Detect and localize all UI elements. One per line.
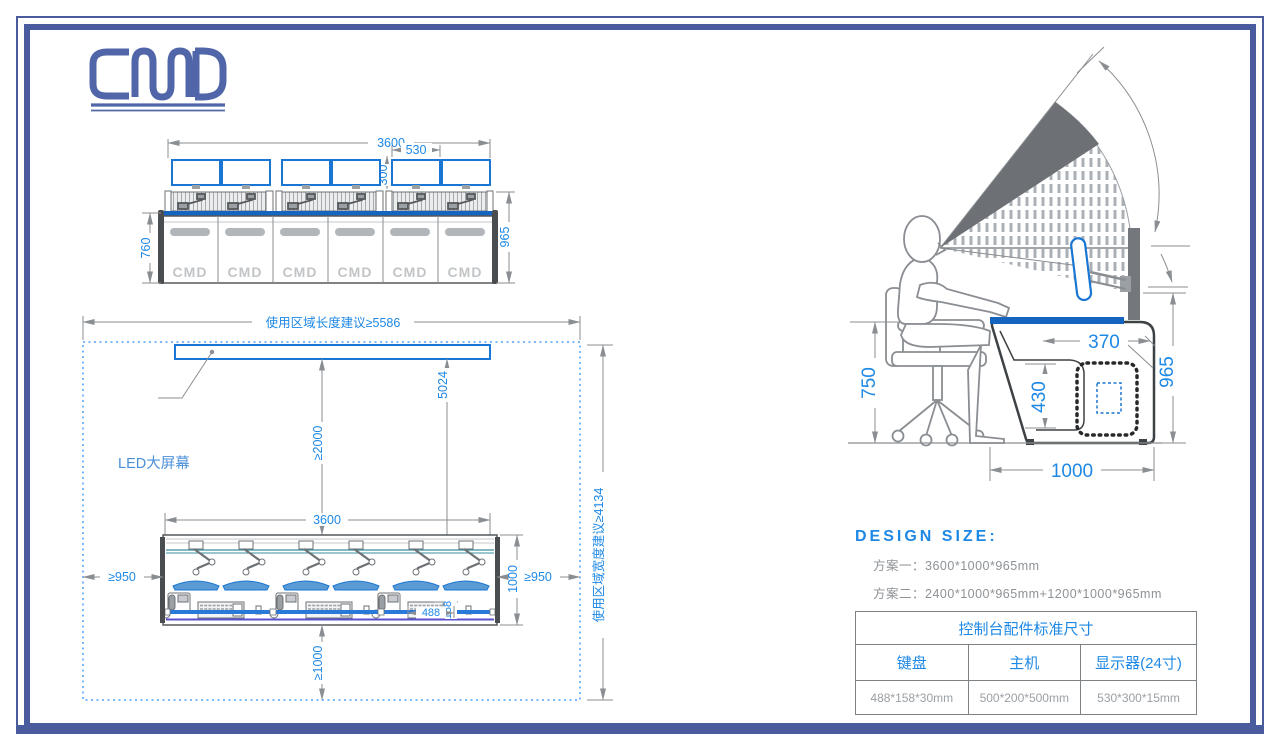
spec-table-title: 控制台配件标准尺寸 (856, 612, 1197, 645)
vision-cone (940, 54, 1132, 292)
spec-val-keyboard: 488*158*30mm (856, 681, 969, 715)
side-console-height-label: 965 (1157, 356, 1178, 388)
plan-screen-clearance-label: ≥2000 (311, 426, 325, 461)
front-dim-total-width: 3600 (168, 136, 490, 158)
front-monitor-width-label: 530 (406, 143, 427, 157)
plan-right-clearance-label: ≥950 (524, 570, 552, 584)
side-monitor-setback-label: 370 (1088, 332, 1120, 353)
plan-screen-to-front-label: 5024 (436, 371, 450, 399)
side-armrest-height-label: 750 (859, 367, 880, 399)
plan-dim-front-clearance: ≥1000 (311, 625, 329, 700)
panel-logo: CMD (283, 264, 318, 280)
option-2-value: 2400*1000*965mm+1200*1000*965mm (925, 587, 1162, 601)
panel-logo: CMD (338, 264, 373, 280)
plan-dim-screen-clearance: ≥2000 (311, 359, 329, 535)
option-1-value: 3600*1000*965mm (925, 559, 1040, 573)
plan-console-depth-label: 1000 (506, 565, 520, 593)
option-2-label: 方案二： (873, 587, 925, 601)
design-size-option-1: 方案一：3600*1000*965mm (855, 555, 1215, 574)
spec-val-host: 500*200*500mm (968, 681, 1081, 715)
front-console-body: CMD CMD CMD CMD CMD CMD (158, 210, 498, 284)
spec-col-monitor: 显示器(24寸) (1081, 645, 1197, 681)
plan-dim-console-width: 3600 (165, 513, 490, 535)
panel-logo: CMD (173, 264, 208, 280)
panel-logo: CMD (228, 264, 263, 280)
plan-keyboard-width-label: 488 (422, 607, 440, 619)
accessory-spec-table: 控制台配件标准尺寸 键盘 主机 显示器(24寸) 488*158*30mm 50… (855, 611, 1197, 715)
design-size-block: DESIGN SIZE: 方案一：3600*1000*965mm 方案二：240… (855, 528, 1215, 602)
front-elevation-view: 3600 530 300 (60, 112, 560, 302)
spec-col-host: 主机 (968, 645, 1081, 681)
cmd-logo (83, 42, 233, 114)
plan-dim-area-width: 使用区域宽度建议≥4134 (587, 345, 613, 700)
plan-view: 使用区域长度建议≥5586 LED大屏幕 ≥2000 5024 (60, 310, 640, 715)
panel-logo: CMD (393, 264, 428, 280)
plan-dim-console-depth: 1000 (500, 535, 524, 625)
front-dim-body-height: 760 (139, 213, 161, 283)
plan-front-clearance-label: ≥1000 (311, 646, 325, 681)
plan-left-clearance-label: ≥950 (108, 570, 136, 584)
console-section (990, 317, 1154, 445)
front-total-height-label: 965 (498, 227, 512, 248)
spec-val-monitor: 530*300*15mm (1081, 681, 1197, 715)
side-compartment-height-label: 430 (1029, 381, 1050, 413)
plan-led-screen-label: LED大屏幕 (118, 455, 190, 472)
design-size-option-2: 方案二：2400*1000*965mm+1200*1000*965mm (855, 583, 1215, 602)
side-dim-console-depth: 1000 (990, 447, 1154, 482)
drawing-sheet: 3600 530 300 (0, 0, 1280, 750)
front-total-width-label: 3600 (377, 136, 405, 150)
plan-dim-left-clearance: ≥950 (83, 570, 163, 584)
plan-console-width-label: 3600 (313, 513, 341, 527)
front-body-height-label: 760 (139, 238, 153, 259)
plan-dim-area-length: 使用区域长度建议≥5586 (83, 314, 580, 340)
plan-area-length-label: 使用区域长度建议≥5586 (266, 315, 401, 330)
panel-logo: CMD (448, 264, 483, 280)
front-monitor-rail (165, 191, 493, 212)
side-console-depth-label: 1000 (1051, 461, 1093, 482)
option-1-label: 方案一： (873, 559, 925, 573)
front-dim-total-height: 965 (496, 192, 516, 283)
design-size-title: DESIGN SIZE: (855, 528, 1215, 546)
side-view: 750 370 430 965 (840, 40, 1270, 500)
plan-area-width-label: 使用区域宽度建议≥4134 (591, 488, 606, 623)
front-monitors (172, 160, 490, 185)
spec-col-keyboard: 键盘 (856, 645, 969, 681)
